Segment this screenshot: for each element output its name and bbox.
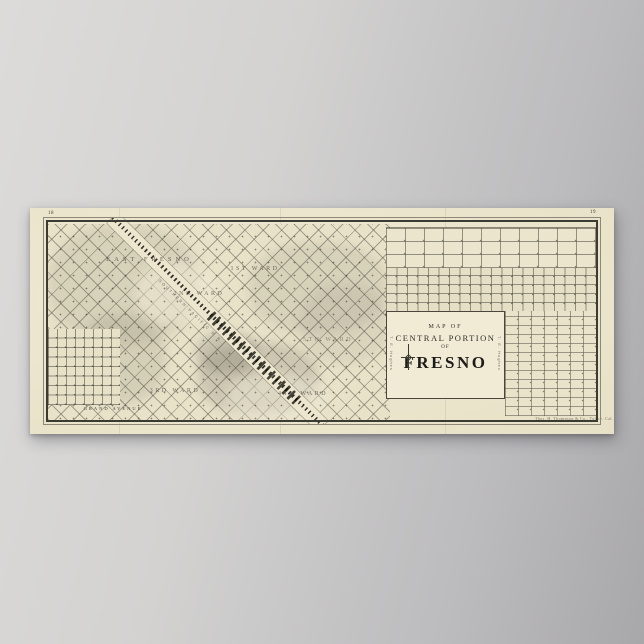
shading-patch — [248, 242, 388, 334]
shading-patch — [300, 284, 390, 364]
ward-label-4: 4TH WARD — [260, 391, 346, 397]
east-fresno-grid-lower — [386, 268, 597, 312]
compass-rose — [401, 344, 415, 370]
compass-hub — [404, 353, 411, 360]
district-label-east-fresno: EAST FRESNO — [54, 256, 245, 263]
east-fresno-section — [386, 227, 597, 312]
ward-label-5: 5TH WARD — [285, 337, 371, 343]
page-number-right: 19 — [590, 210, 596, 215]
map-title-line1: MAP OF — [387, 324, 504, 330]
street-label-grand-avenue: GRAND AVENUE — [68, 406, 158, 411]
southeast-addition-grid — [505, 311, 597, 416]
east-fresno-grid-upper — [386, 228, 597, 268]
title-cartouche: T. E. Hughes T. E. Hughes MAP OF CENTRAL… — [386, 311, 505, 399]
map-poster: 18 19 Thos. H. Thompson & Co., Tulare, C… — [30, 208, 614, 434]
map-title-line2: CENTRAL PORTION — [387, 333, 504, 343]
page-number-left: 18 — [48, 211, 54, 216]
ward-label-1: 1ST WARD — [212, 266, 298, 272]
grand-avenue-addition-grid — [48, 329, 120, 405]
wall-background: 18 19 Thos. H. Thompson & Co., Tulare, C… — [0, 0, 644, 644]
tract-label-right: T. E. Hughes — [497, 336, 502, 371]
ward-label-2: 2ND WARD — [156, 291, 242, 297]
ward-label-3: 3RD WARD — [132, 388, 218, 394]
tract-label-left: T. E. Hughes — [389, 336, 394, 371]
map-border-frame: SOUTHERN PACIFIC R.R. EAST FRESNO GRAND … — [43, 217, 601, 425]
